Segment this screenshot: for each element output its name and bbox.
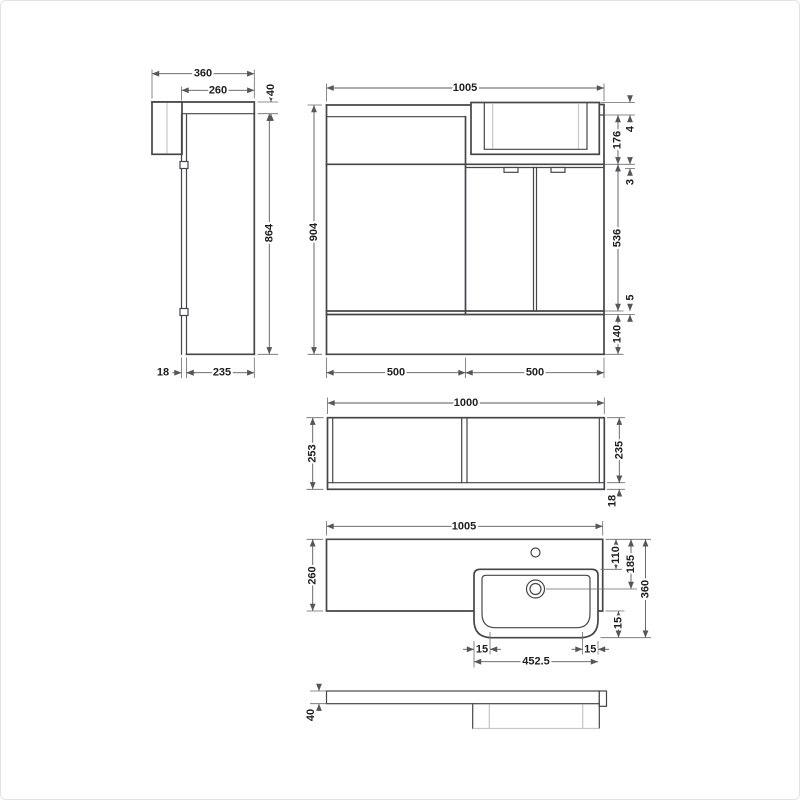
carcass-plan-view: 1000 253 235 18 — [307, 397, 626, 507]
dim-label-40: 40 — [265, 84, 277, 96]
dim-label-15-overhang: 15 — [613, 617, 625, 629]
dim-front-basin-lip: 4 — [625, 96, 637, 133]
waste-inner-icon — [530, 584, 541, 595]
carcass-outline — [328, 418, 605, 490]
dim-label-15-left: 15 — [476, 643, 488, 655]
dim-label-40-profile: 40 — [305, 709, 317, 721]
worktop-plan-view: 1005 260 110 185 360 15 15 — [307, 520, 652, 667]
dim-label-5: 5 — [625, 294, 637, 300]
profile-basin-seams — [489, 705, 582, 729]
side-hinge-mark-top — [180, 162, 188, 169]
dim-front-overall-height: 904 — [308, 105, 323, 354]
dim-front-gap-door-plinth: 5 — [625, 294, 637, 321]
dim-front-bay-widths: 500 500 — [327, 358, 605, 379]
dim-label-1000: 1000 — [454, 397, 478, 409]
dim-carcass-width: 1000 — [328, 397, 605, 414]
side-elevation-view: 360 260 40 864 18 235 — [152, 68, 278, 379]
dim-front-door-height: 536 — [612, 164, 624, 311]
door-handle-left-icon — [504, 168, 518, 173]
dim-front-basin-height: 176 — [612, 115, 624, 164]
tap-hole-icon — [531, 548, 540, 557]
dim-worktop-tap-setback: 110 — [610, 539, 622, 569]
dim-front-plinth-height: 140 — [612, 315, 624, 355]
worktop-profile-view: 40 — [305, 685, 607, 729]
dim-front-overall-width: 1005 — [327, 82, 605, 102]
front-basin-outline — [471, 103, 599, 155]
dim-label-18-plan: 18 — [607, 495, 619, 507]
dim-side-body-height: 864 — [258, 114, 279, 355]
dim-label-235-plan: 235 — [613, 441, 625, 459]
front-elevation-view: 1005 904 4 176 3 536 5 — [308, 82, 637, 379]
dim-worktop-basin-overhang: 15 — [613, 611, 625, 638]
dim-profile-thickness: 40 — [305, 685, 327, 722]
profile-end-tab — [599, 691, 606, 706]
dim-label-4: 4 — [625, 125, 637, 132]
dim-label-452-5: 452.5 — [522, 656, 550, 668]
dim-front-gap-basin-door: 3 — [625, 158, 637, 186]
dim-label-1005: 1005 — [453, 82, 477, 94]
dim-label-360-plan: 360 — [640, 580, 652, 598]
dim-label-904: 904 — [308, 222, 320, 241]
dim-label-140: 140 — [612, 325, 624, 343]
drawing-svg: 360 260 40 864 18 235 — [1, 1, 800, 801]
dim-label-15-right: 15 — [584, 643, 596, 655]
dim-carcass-depth: 253 — [307, 418, 324, 490]
dim-label-536: 536 — [612, 229, 624, 247]
dim-label-260: 260 — [307, 566, 319, 584]
dim-worktop-waste-setback: 185 — [625, 539, 637, 589]
dim-label-253: 253 — [307, 444, 319, 462]
dim-label-235: 235 — [213, 367, 231, 379]
dim-carcass-back-panel: 18 — [607, 476, 620, 508]
dim-label-260: 260 — [209, 84, 227, 96]
dim-worktop-width: 1005 — [327, 520, 603, 535]
dim-label-500-right: 500 — [526, 367, 544, 379]
dim-label-360: 360 — [194, 68, 212, 80]
dim-carcass-internal-depth: 235 — [607, 418, 625, 490]
front-door-split — [534, 168, 537, 312]
dim-label-864: 864 — [263, 223, 275, 242]
technical-drawing-canvas: 360 260 40 864 18 235 — [0, 0, 800, 800]
dim-worktop-left-depth: 260 — [307, 539, 324, 611]
dim-label-1005-plan: 1005 — [452, 520, 476, 532]
dim-side-worktop-height: 40 — [258, 84, 279, 120]
dim-side-worktop-depth: 260 — [182, 84, 255, 100]
dim-label-110: 110 — [610, 546, 622, 564]
dim-label-18: 18 — [157, 367, 169, 379]
dim-label-185: 185 — [625, 555, 637, 573]
dim-side-panel-thickness: 18 — [157, 358, 196, 379]
profile-worktop-bar — [327, 691, 600, 704]
dim-label-500-left: 500 — [387, 367, 405, 379]
dim-label-3: 3 — [625, 179, 637, 185]
dim-side-body-depth: 235 — [187, 358, 255, 379]
dim-side-overall-depth: 360 — [152, 68, 254, 99]
dim-worktop-overall-depth: 360 — [640, 539, 652, 637]
dim-label-176: 176 — [612, 131, 624, 149]
side-hinge-mark-bottom — [180, 309, 188, 316]
door-handle-right-icon — [551, 168, 565, 173]
